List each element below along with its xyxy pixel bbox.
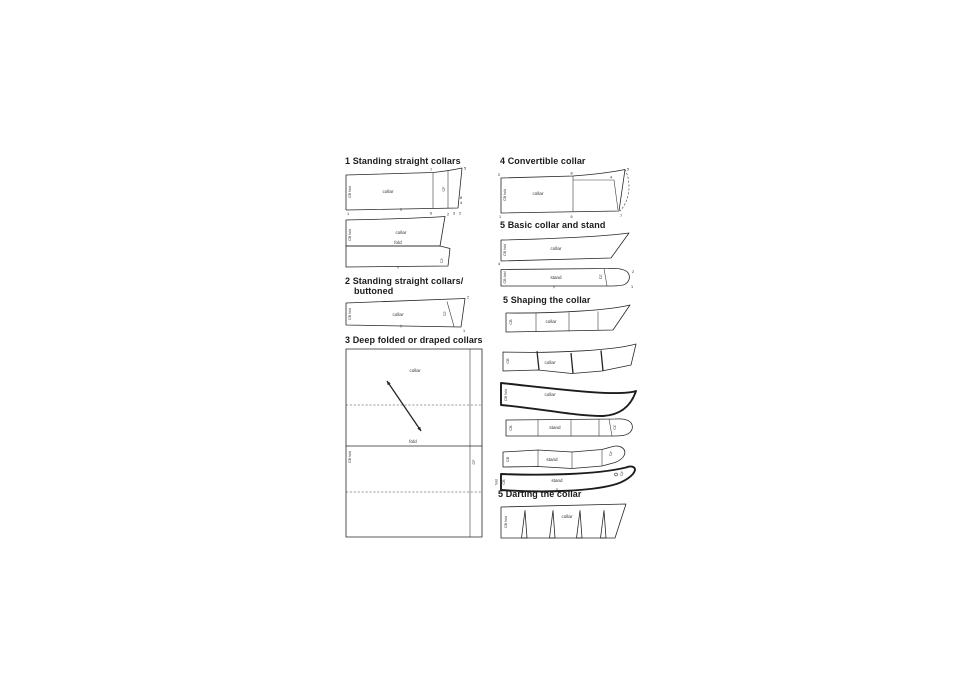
label-collar: collar (546, 319, 557, 324)
cf-line (447, 302, 454, 327)
label-cb-fold: CB fold (348, 186, 352, 198)
cf-line (604, 269, 607, 287)
label-cb-fold: CB fold (503, 271, 507, 283)
diagram-standing-collar-draft: collar CB fold CF 7 6 5 8 4 3 2 1 (343, 165, 475, 217)
label-collar: collar (545, 392, 556, 397)
overlap-wedge-1 (537, 351, 539, 370)
alternate-edge-dashed (620, 170, 629, 212)
overlap-wedge-2 (571, 353, 573, 374)
collar-drafting-sheet: 1 Standing straight collars collar CB fo… (0, 0, 980, 700)
point-6: 6 (571, 215, 573, 219)
point-1: 1 (463, 329, 465, 333)
diagram-shaped-collar-final: collar CB fold (498, 375, 640, 417)
dart-3 (577, 511, 583, 539)
point-8: 8 (460, 196, 462, 200)
label-collar: collar (562, 514, 573, 519)
diagram-convertible-collar: collar CB fold 2 8 4 5 1 6 7 (498, 167, 638, 221)
collar-outline (506, 305, 630, 332)
label-stand: stand (550, 275, 562, 280)
section-title-darting: 5 Darting the collar (498, 489, 582, 499)
label-cb-fold: CB fold (503, 189, 507, 201)
point-5: 5 (464, 167, 466, 171)
label-fold: fold (409, 439, 417, 444)
label-collar: collar (545, 360, 556, 365)
label-cb-fold: CB fold (504, 516, 508, 528)
label-cf: CF (619, 470, 625, 477)
point-2: 2 (498, 173, 500, 177)
label-cb-fold: CB fold (348, 229, 352, 241)
diagram-deep-folded-collar: collar fold CB fold CF (343, 345, 485, 541)
label-stand: stand (551, 478, 563, 483)
diagram-shaping-collar-sectioned: collar CB (503, 303, 635, 337)
dart-2 (550, 511, 556, 539)
diagram-shaping-collar-slashed: collar CB (500, 340, 638, 378)
dart-1 (522, 511, 528, 539)
label-cb: CB (509, 319, 513, 325)
section-title-convertible: 4 Convertible collar (500, 156, 586, 166)
label-cf: CF (608, 450, 614, 457)
label-cb-fold: CB fold (504, 389, 508, 401)
label-collar: collar (410, 368, 421, 373)
collar-outline (501, 233, 629, 261)
inner-corner-line (573, 180, 618, 210)
dart-4 (601, 511, 607, 539)
point-1: 1 (499, 215, 501, 219)
label-fold: fold (495, 479, 499, 485)
collar-outline (501, 504, 626, 538)
collar-outline (501, 170, 625, 214)
grain-arrow-line (387, 381, 421, 431)
label-cf: CF (439, 257, 444, 264)
label-cf: CF (472, 459, 476, 465)
under-collar-outline (346, 246, 450, 267)
label-cb: CB (506, 358, 510, 364)
label-cb-fold: CB fold (348, 451, 352, 463)
point-7: 7 (620, 214, 622, 218)
label-cb-fold: CB fold (503, 244, 507, 256)
section-title-deep-collars: 3 Deep folded or draped collars (345, 335, 483, 345)
label-collar: collar (383, 189, 394, 194)
diagram-basic-stand: stand CB fold CF 2 1 (498, 264, 638, 290)
point-2: 2 (632, 270, 634, 274)
stand-outline (501, 466, 635, 491)
diagram-basic-collar: collar CB fold 4 (498, 231, 634, 265)
collar-outline (503, 344, 636, 374)
diagram-darted-collar: collar CB fold (498, 500, 632, 542)
label-cb-fold: CB fold (348, 308, 352, 320)
point-4: 4 (460, 201, 462, 205)
label-collar: collar (393, 312, 404, 317)
label-collar: collar (551, 246, 562, 251)
diagram-buttoned-collar: collar CB fold CF 2 1 (343, 295, 473, 333)
label-cf: CF (613, 424, 618, 430)
button-mark (615, 473, 618, 476)
point-7: 7 (430, 168, 432, 172)
label-stand: stand (549, 425, 561, 430)
collar-outline (501, 383, 636, 416)
label-cf: CF (599, 273, 604, 279)
overlap-wedge-3 (601, 351, 603, 372)
label-cb: CB (509, 425, 513, 431)
cf-line (609, 419, 612, 436)
point-5: 5 (627, 168, 629, 172)
diagram-standing-collar-folded: collar fold CB fold CF 2 (343, 211, 478, 273)
point-8: 8 (571, 172, 573, 176)
label-cf: CF (442, 186, 446, 192)
label-fold: fold (394, 240, 402, 245)
section-title-basic: 5 Basic collar and stand (500, 220, 605, 230)
point-2: 2 (447, 213, 449, 217)
label-collar: collar (396, 230, 407, 235)
point-4: 4 (610, 176, 612, 180)
label-cb: CB (502, 479, 506, 485)
stand-outline (501, 268, 629, 286)
point-1: 1 (631, 285, 633, 289)
section-title-buttoned-line1: 2 Standing straight collars/ (345, 276, 463, 286)
label-cf: CF (443, 310, 448, 316)
diagram-shaping-stand-sectioned: stand CB CF (503, 414, 641, 439)
point-2: 2 (467, 296, 469, 300)
label-collar: collar (533, 191, 544, 196)
